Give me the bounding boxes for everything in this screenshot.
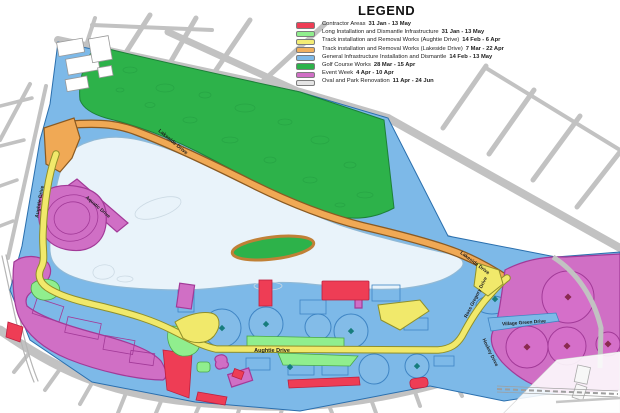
legend-item-dates: 14 Feb - 13 May bbox=[449, 54, 492, 60]
legend-swatch bbox=[296, 55, 315, 61]
legend-swatch bbox=[296, 72, 315, 78]
legend-item-dates: 7 Mar - 22 Apr bbox=[466, 46, 504, 52]
legend-swatch bbox=[296, 39, 315, 45]
legend-item: Golf Course Works28 Mar - 15 Apr bbox=[296, 63, 618, 69]
legend-rows: Contractor Areas31 Jan - 13 May Long Ins… bbox=[296, 22, 618, 85]
legend-title: LEGEND bbox=[358, 3, 618, 18]
legend-swatch bbox=[296, 47, 315, 53]
legend-swatch bbox=[296, 63, 315, 69]
legend-item: Event Week4 Apr - 10 Apr bbox=[296, 71, 618, 77]
legend-item: Track installation and Removal Works (Au… bbox=[296, 38, 618, 44]
legend-swatch bbox=[296, 22, 315, 28]
legend-swatch bbox=[296, 80, 315, 86]
legend-item-dates: 14 Feb - 6 Apr bbox=[462, 37, 500, 43]
legend-item: Oval and Park Renovation11 Apr - 24 Jun bbox=[296, 79, 618, 85]
legend-item-dates: 28 Mar - 15 Apr bbox=[374, 62, 415, 68]
legend-item-dates: 31 Jan - 13 May bbox=[369, 21, 412, 27]
legend-panel: LEGEND Contractor Areas31 Jan - 13 May L… bbox=[296, 3, 618, 85]
legend-item: General Infrastructure Installation and … bbox=[296, 55, 618, 61]
legend-item-dates: 31 Jan - 13 May bbox=[442, 29, 485, 35]
legend-item: Track installation and Removal Works (La… bbox=[296, 47, 618, 53]
legend-item-label: Long Installation and Dismantle Infrastr… bbox=[322, 29, 439, 35]
legend-item-label: Oval and Park Renovation bbox=[322, 78, 390, 84]
legend-item-label: Contractor Areas bbox=[322, 21, 366, 27]
legend-swatch bbox=[296, 31, 315, 37]
legend-item-label: Track installation and Removal Works (Au… bbox=[322, 37, 459, 43]
legend-item-label: General Infrastructure Installation and … bbox=[322, 54, 446, 60]
legend-item-label: Golf Course Works bbox=[322, 62, 371, 68]
legend-item-label: Event Week bbox=[322, 70, 353, 76]
legend-item: Contractor Areas31 Jan - 13 May bbox=[296, 22, 618, 28]
legend-item-dates: 4 Apr - 10 Apr bbox=[356, 70, 394, 76]
road-label-aughtie-south: Aughtie Drive bbox=[254, 348, 290, 354]
legend-item-label: Track installation and Removal Works (La… bbox=[322, 46, 463, 52]
legend-item-dates: 11 Apr - 24 Jun bbox=[393, 78, 434, 84]
map-canvas: Lakeside Drive Lakeside Drive Aughtie Dr… bbox=[0, 0, 620, 413]
legend-item: Long Installation and Dismantle Infrastr… bbox=[296, 30, 618, 36]
